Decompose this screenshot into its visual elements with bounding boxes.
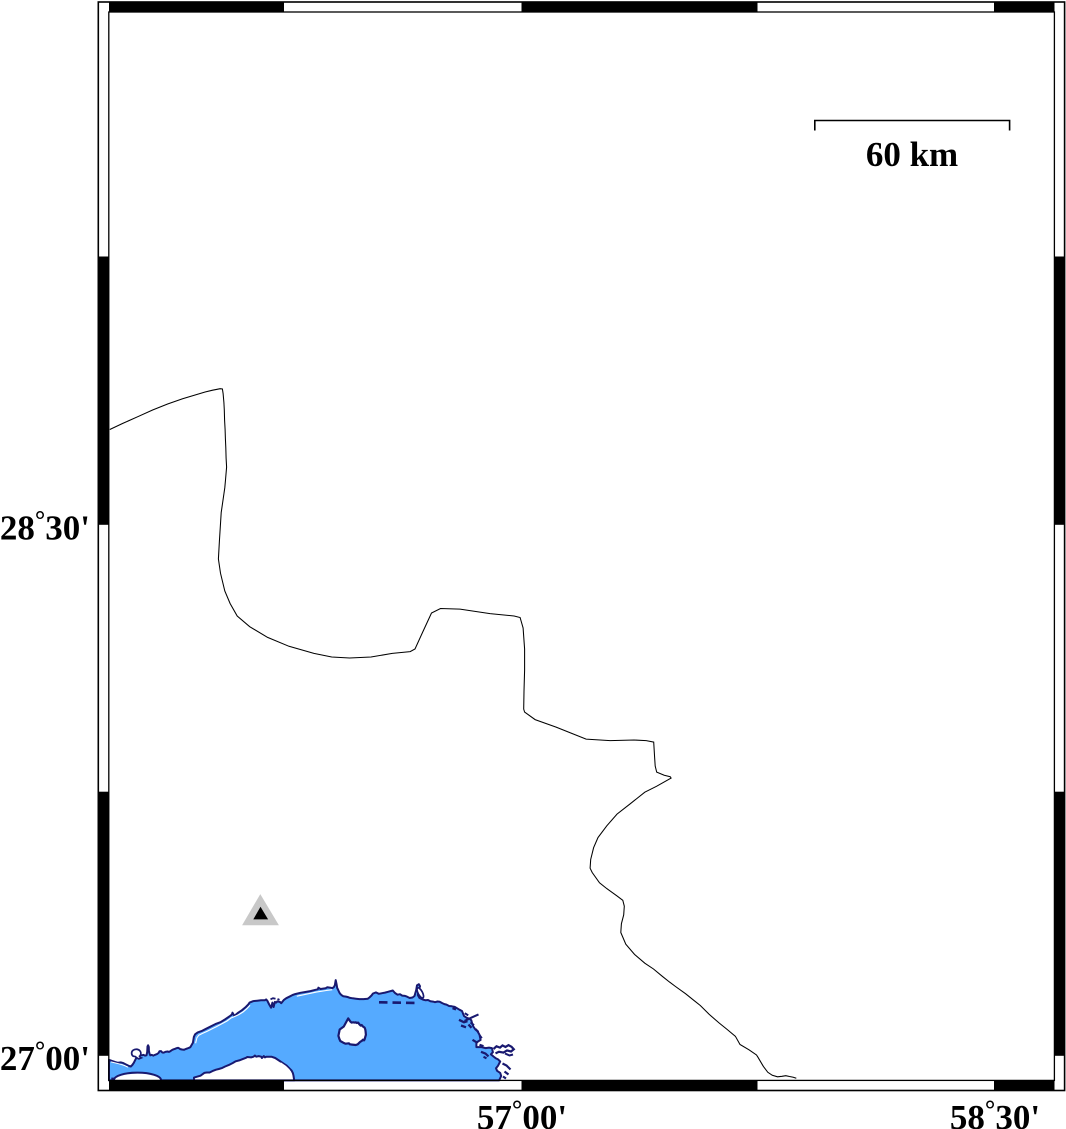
svg-text:57°00': 57°00' xyxy=(477,1095,567,1129)
svg-text:28°30': 28°30' xyxy=(0,505,90,547)
svg-text:60 km: 60 km xyxy=(866,135,958,174)
svg-text:27°00': 27°00' xyxy=(0,1036,90,1078)
svg-text:58°30': 58°30' xyxy=(950,1095,1040,1129)
